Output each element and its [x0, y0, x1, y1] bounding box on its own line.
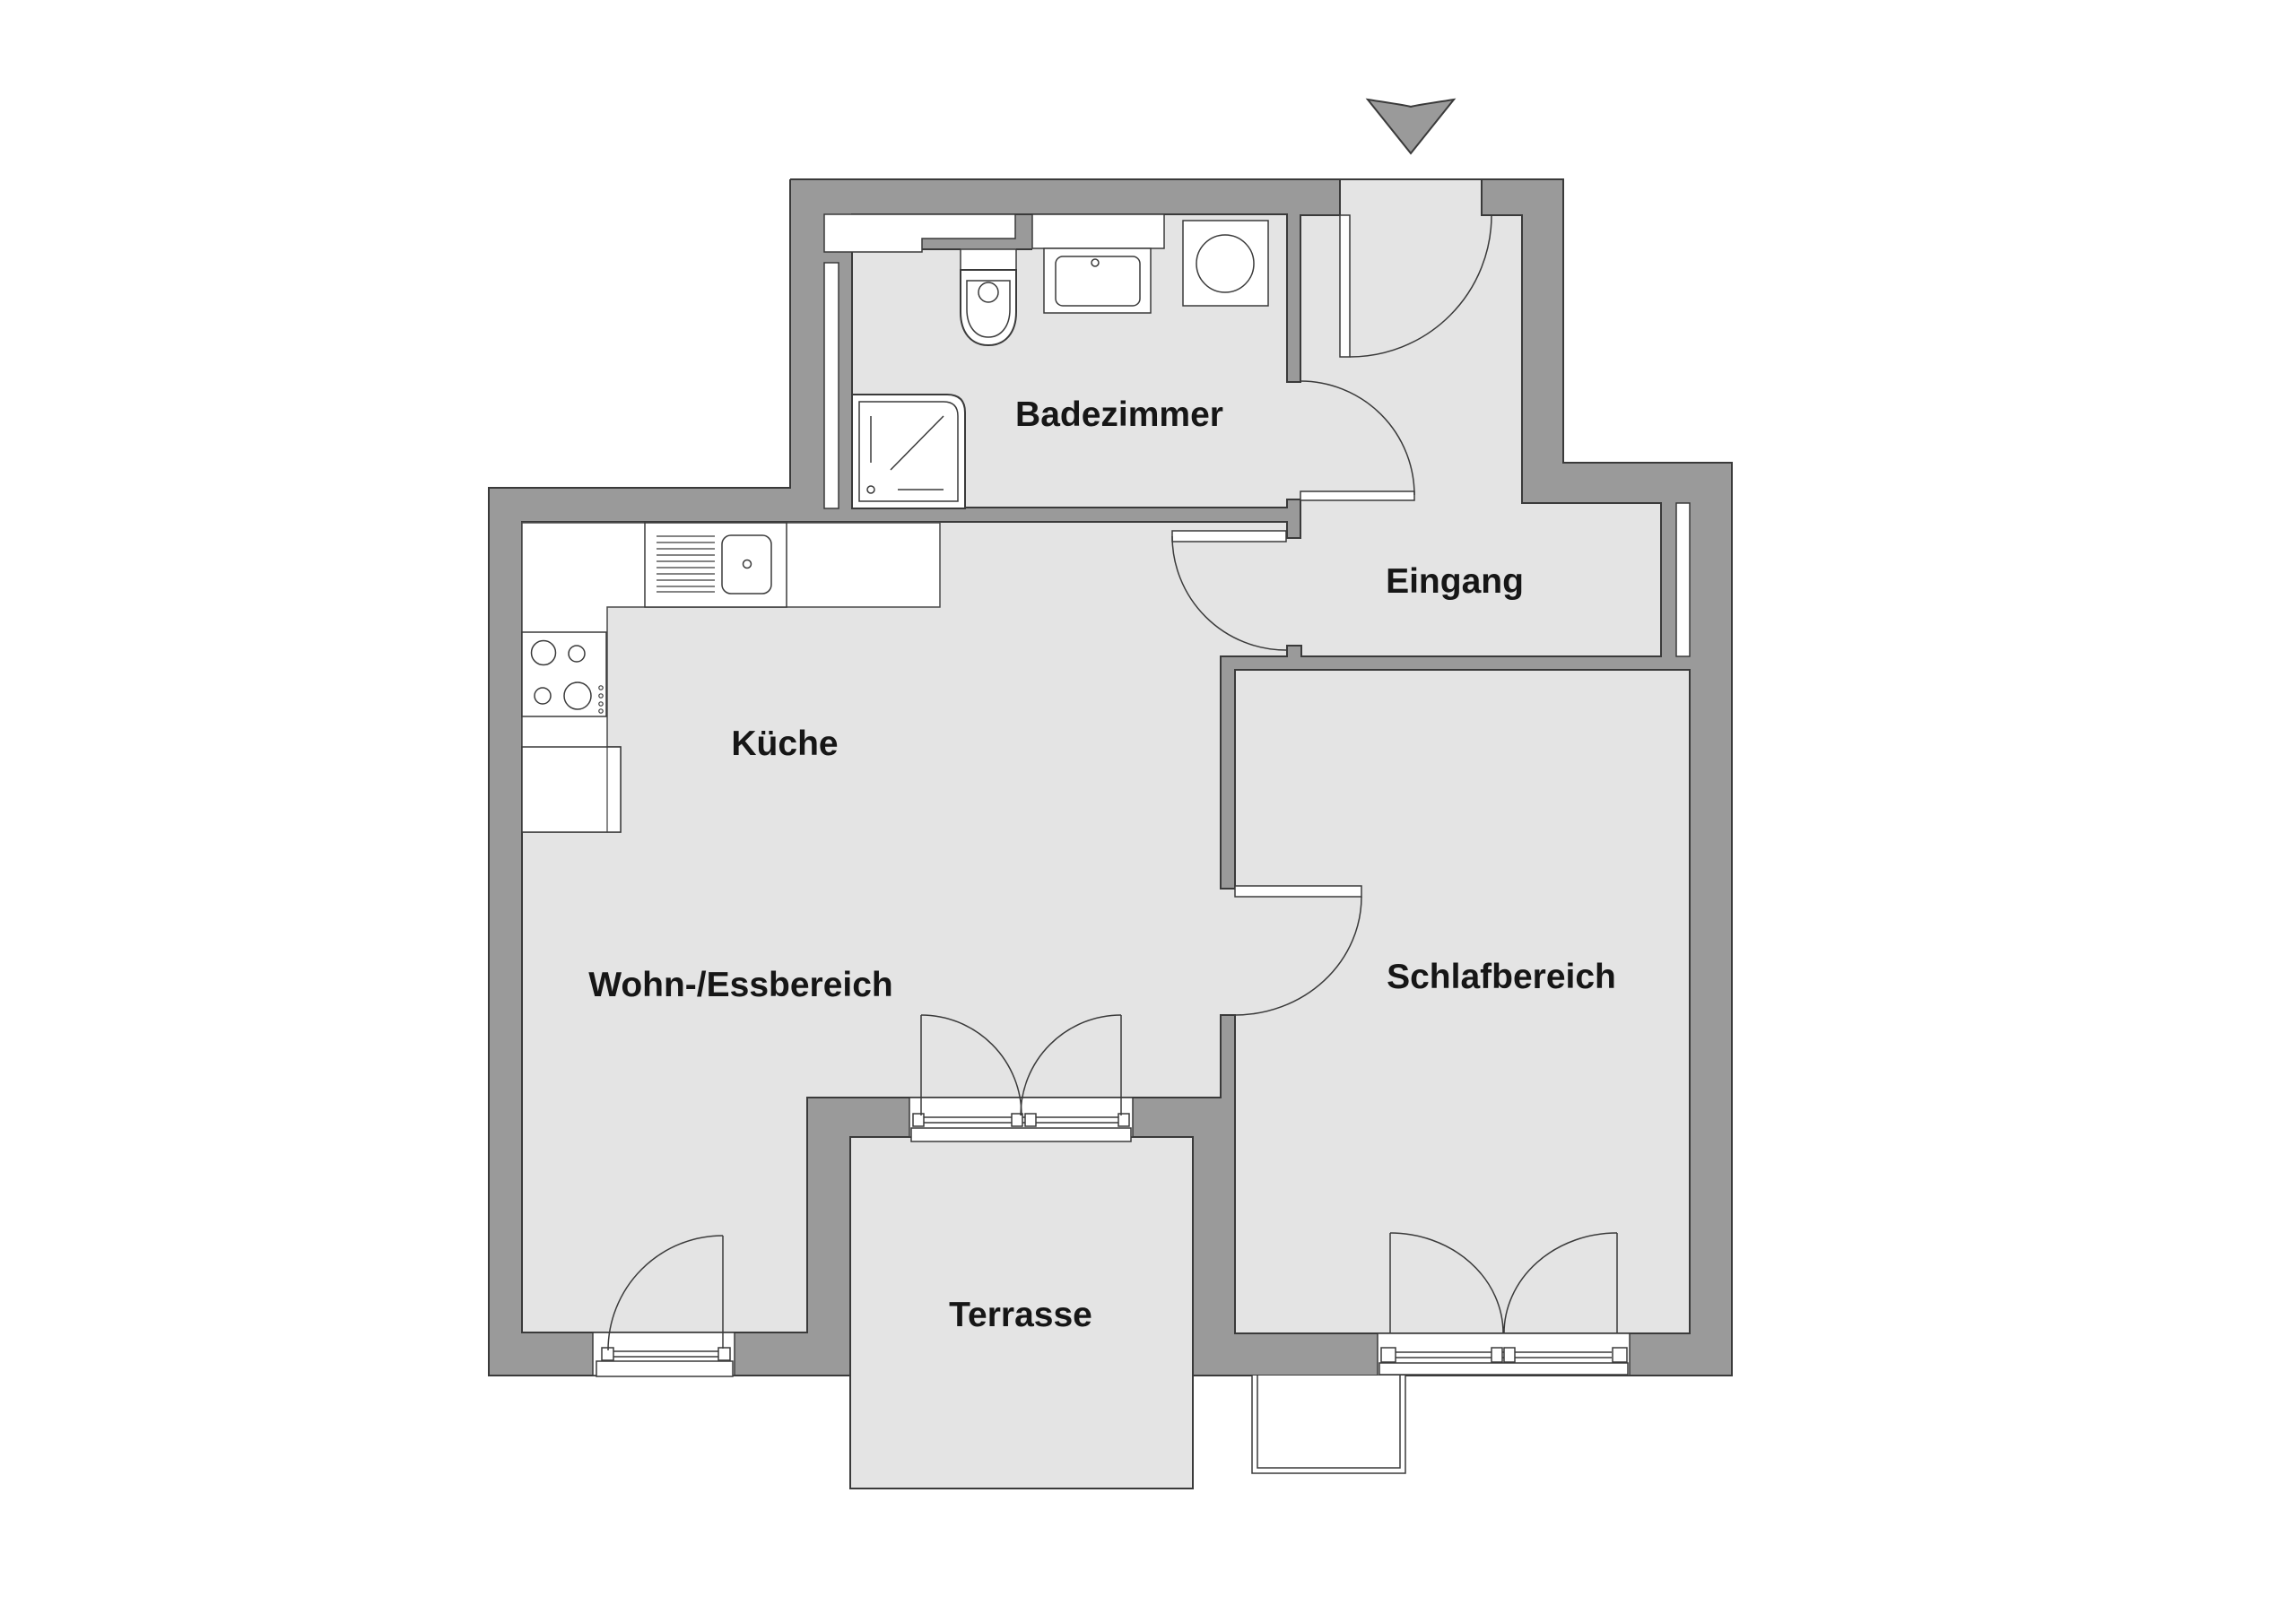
svg-text:Schlafbereich: Schlafbereich [1387, 958, 1616, 996]
svg-text:Wohn-/Essbereich: Wohn-/Essbereich [588, 966, 893, 1004]
svg-text:Terrasse: Terrasse [949, 1296, 1092, 1334]
svg-text:Badezimmer: Badezimmer [1015, 395, 1223, 434]
svg-text:Küche: Küche [731, 725, 838, 763]
svg-text:Eingang: Eingang [1386, 562, 1524, 601]
